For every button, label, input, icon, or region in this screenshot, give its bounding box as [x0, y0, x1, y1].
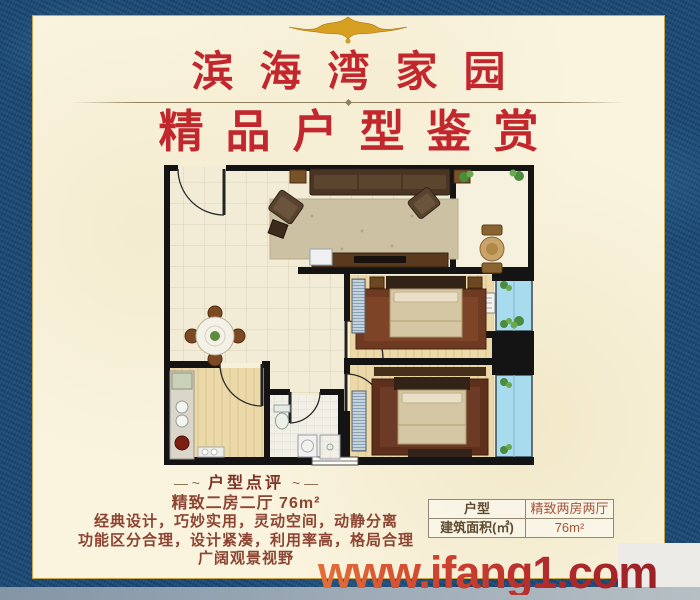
review-line: 经典设计，巧妙实用，灵动空间，动静分离 — [50, 513, 442, 532]
headboard — [394, 377, 470, 390]
bedroom1-furniture — [352, 276, 486, 349]
title-block: 滨海湾家园 精品户型鉴赏 — [32, 50, 665, 157]
tv-icon — [354, 256, 406, 263]
sink — [176, 401, 188, 413]
stove-burner — [175, 436, 189, 450]
dresser — [374, 367, 486, 376]
sink — [176, 415, 188, 427]
kitchen-appliance — [172, 373, 192, 389]
review-heading: 户型点评 — [208, 474, 284, 493]
title-divider — [72, 100, 625, 105]
spec-table: 户型 精致两房两厅 建筑面积(㎡) 76m² — [428, 499, 614, 538]
pillows — [402, 393, 462, 403]
nightstand — [468, 277, 482, 288]
bedroom2-furniture — [352, 367, 488, 457]
balcony-bench — [482, 263, 502, 273]
wardrobe — [352, 279, 365, 333]
shower — [320, 435, 340, 459]
heading-decor-left: — ~ — [174, 474, 200, 493]
pillows — [394, 292, 458, 302]
review-heading-row: — ~ 户型点评 ~ — — [50, 474, 442, 493]
layout-summary: 精致二房二厅 76m² — [50, 494, 442, 513]
spec-label-area: 建筑面积(㎡) — [429, 519, 526, 538]
wardrobe — [352, 391, 366, 451]
table-row: 建筑面积(㎡) 76m² — [429, 519, 614, 538]
balcony-bench — [482, 225, 502, 235]
dining-hall-floor — [168, 272, 344, 363]
spec-label-layout: 户型 — [429, 500, 526, 519]
spec-value-layout: 精致两房两厅 — [526, 500, 614, 519]
washing-machine — [298, 435, 317, 457]
floorplan — [162, 161, 538, 471]
toilet-tank — [274, 405, 290, 412]
watermark: www.ifang1.com — [318, 550, 657, 595]
speaker-box — [310, 249, 332, 265]
poster-subtitle: 精品户型鉴赏 — [54, 107, 665, 157]
headboard — [386, 276, 466, 289]
table-plant-icon — [210, 331, 220, 341]
gold-flourish-icon — [283, 16, 413, 44]
poster: 滨海湾家园 精品户型鉴赏 — [0, 0, 700, 600]
toilet — [276, 413, 289, 429]
tv-cabinet — [408, 449, 472, 457]
end-table — [290, 170, 306, 183]
table-row: 户型 精致两房两厅 — [429, 500, 614, 519]
nightstand — [370, 277, 384, 288]
heading-decor-right: ~ — — [292, 474, 318, 493]
poster-title: 滨海湾家园 — [58, 50, 665, 96]
spec-value-area: 76m² — [526, 519, 614, 538]
